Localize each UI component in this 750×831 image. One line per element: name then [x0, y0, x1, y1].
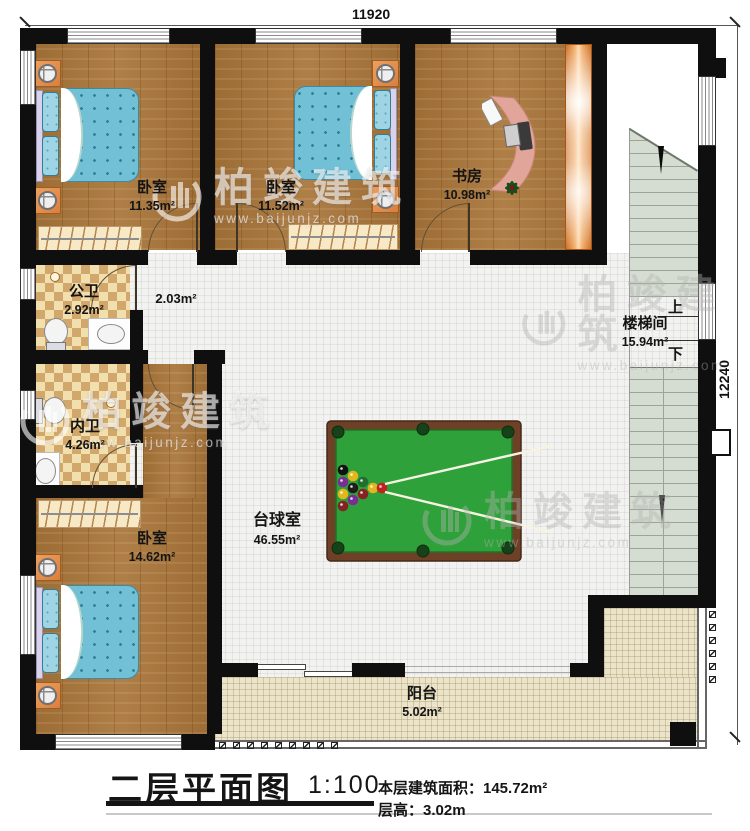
balcony-floor-right [604, 608, 698, 677]
balcony-name: 阳台 [402, 684, 442, 704]
wall-segment [20, 28, 67, 44]
billiards-area: 46.55m² [253, 532, 301, 548]
room-label-balcony: 阳台 5.02m² [402, 684, 442, 720]
wardrobe [38, 500, 141, 528]
wall-segment [197, 250, 237, 265]
wall-segment [470, 250, 607, 265]
dimension-top-value: 11920 [352, 6, 390, 22]
wall-segment [130, 364, 143, 443]
stairs-lower-flight [630, 367, 698, 600]
billiards-name: 台球室 [253, 511, 301, 532]
window [698, 76, 716, 146]
study-name: 书房 [444, 167, 491, 187]
railing-post-icon [709, 663, 716, 670]
plant-icon [505, 181, 519, 195]
double-bed [36, 88, 140, 182]
railing-post-icon [709, 611, 716, 618]
nightstand [34, 554, 61, 581]
wall-niche [710, 429, 731, 456]
door-leaf [236, 203, 238, 252]
door-leaf [192, 364, 194, 410]
stair-direction-arrow-icon [658, 146, 664, 174]
door-leaf [196, 203, 198, 252]
inner-bath-name: 内卫 [65, 417, 105, 437]
lamp-icon [38, 558, 57, 577]
stairwell-name: 楼梯间 [622, 314, 669, 334]
wall-segment [716, 58, 726, 78]
wall-segment [557, 28, 716, 44]
lamp-icon [38, 191, 57, 210]
ceiling-light-icon [50, 272, 60, 282]
bedroom1-name: 卧室 [129, 178, 175, 198]
ceiling-light-icon [106, 398, 116, 408]
nightstand [34, 187, 61, 214]
stairs-up-label: 上 [668, 296, 683, 317]
drawing-scale: 1:100 [308, 771, 381, 800]
railing-post-icon [709, 676, 716, 683]
stair-direction-arrow-icon [659, 495, 665, 523]
window [20, 575, 36, 655]
room-label-bedroom2: 卧室 11.52m² [258, 178, 304, 214]
pillow [42, 633, 59, 673]
window [20, 50, 36, 105]
balcony-floor [215, 677, 698, 740]
study-area: 10.98m² [444, 187, 491, 203]
wall-segment [592, 44, 607, 265]
double-bed [293, 86, 397, 180]
pillow [42, 589, 59, 629]
inner-bath-area: 4.26m² [65, 437, 105, 453]
bedroom2-name: 卧室 [258, 178, 304, 198]
bed-headboard [390, 88, 397, 180]
wall-segment [200, 44, 215, 250]
room-label-billiards: 台球室 46.55m² [253, 511, 301, 548]
monitor-icon [504, 124, 521, 147]
bedroom3-name: 卧室 [129, 529, 176, 549]
room-label-hallway: 2.03m² [155, 291, 196, 308]
wall-segment [36, 350, 148, 364]
stairs-down-label: 下 [668, 343, 683, 364]
study-shelf [565, 44, 592, 250]
public-bath-name: 公卫 [64, 282, 104, 302]
railing-post-icon [709, 650, 716, 657]
pillow [42, 92, 59, 132]
bedroom3-area: 14.62m² [129, 549, 176, 565]
window [255, 28, 362, 44]
nightstand [372, 186, 399, 213]
wall-segment [207, 663, 258, 677]
lamp-icon [38, 686, 57, 705]
toilet-icon [44, 318, 68, 345]
wall-segment [20, 250, 148, 265]
balcony-railing [705, 608, 707, 748]
window [698, 283, 716, 340]
floor-area-text: 本层建筑面积：145.72m² [378, 777, 547, 798]
railing-post-icon [317, 742, 324, 749]
title-underline [106, 801, 374, 806]
wall-segment [286, 250, 420, 265]
railing-post-icon [709, 624, 716, 631]
dimension-line-right [737, 25, 738, 745]
balcony-window-line [405, 666, 570, 667]
desk-with-computer [482, 92, 542, 204]
railing-post-icon [233, 742, 240, 749]
wall-segment [400, 44, 415, 250]
window [20, 268, 36, 300]
toilet-icon [43, 397, 66, 424]
lamp-icon [376, 190, 395, 209]
pillow [374, 134, 391, 174]
billiard-table [315, 413, 565, 568]
room-label-public-bath: 公卫 2.92m² [64, 282, 104, 318]
pillow [42, 136, 59, 176]
railing-post-icon [275, 742, 282, 749]
sink-icon [97, 324, 125, 344]
sink-icon [35, 458, 56, 484]
door-leaf [135, 265, 137, 310]
balcony-window-line [405, 672, 570, 673]
hallway-area: 2.03m² [155, 291, 196, 308]
room-label-bedroom3: 卧室 14.62m² [129, 529, 176, 565]
wall-segment [352, 663, 405, 677]
room-label-inner-bath: 内卫 4.26m² [65, 417, 105, 453]
public-bath-area: 2.92m² [64, 302, 104, 318]
window [20, 390, 36, 420]
wall-segment [362, 28, 450, 44]
railing-post-icon [247, 742, 254, 749]
room-label-stairwell: 楼梯间 15.94m² [622, 314, 669, 350]
window [450, 28, 557, 44]
stairs-upper-flight [630, 128, 698, 297]
nightstand [34, 60, 61, 87]
railing-post-icon [289, 742, 296, 749]
dimension-right-value: 12240 [716, 360, 732, 399]
balcony-area: 5.02m² [402, 704, 442, 720]
lamp-icon [38, 64, 57, 83]
double-bed [36, 585, 140, 679]
room-label-study: 书房 10.98m² [444, 167, 491, 203]
dimension-tick-icon [729, 731, 740, 742]
wall-segment [130, 310, 143, 350]
wardrobe [38, 226, 142, 252]
stair-divider-line [663, 367, 664, 600]
sliding-door-leaf [304, 671, 354, 677]
wall-segment [570, 663, 588, 677]
dimension-line-top [25, 25, 737, 26]
railing-post-icon [261, 742, 268, 749]
bedroom1-area: 11.35m² [129, 198, 175, 214]
pillow [374, 90, 391, 130]
wall-segment [588, 595, 716, 608]
railing-post-icon [303, 742, 310, 749]
floor-height-text: 层高：3.02m [378, 799, 466, 820]
railing-post-icon [219, 742, 226, 749]
room-label-bedroom1: 卧室 11.35m² [129, 178, 175, 214]
wardrobe [288, 224, 398, 250]
wall-segment [670, 722, 696, 746]
window [67, 28, 170, 44]
balcony-railing [697, 608, 699, 748]
door-leaf [468, 203, 470, 252]
nightstand [372, 60, 399, 87]
door-leaf [135, 444, 137, 488]
floor-plan-canvas: 11920 12240 [0, 0, 750, 831]
railing-post-icon [331, 742, 338, 749]
sliding-door-leaf [256, 664, 306, 670]
window [55, 734, 182, 750]
lamp-icon [376, 64, 395, 83]
bedroom2-area: 11.52m² [258, 198, 304, 214]
stair-top-line [630, 367, 698, 368]
nightstand [34, 682, 61, 709]
railing-post-icon [709, 637, 716, 644]
wall-segment [170, 28, 255, 44]
stairwell-area: 15.94m² [622, 334, 669, 350]
